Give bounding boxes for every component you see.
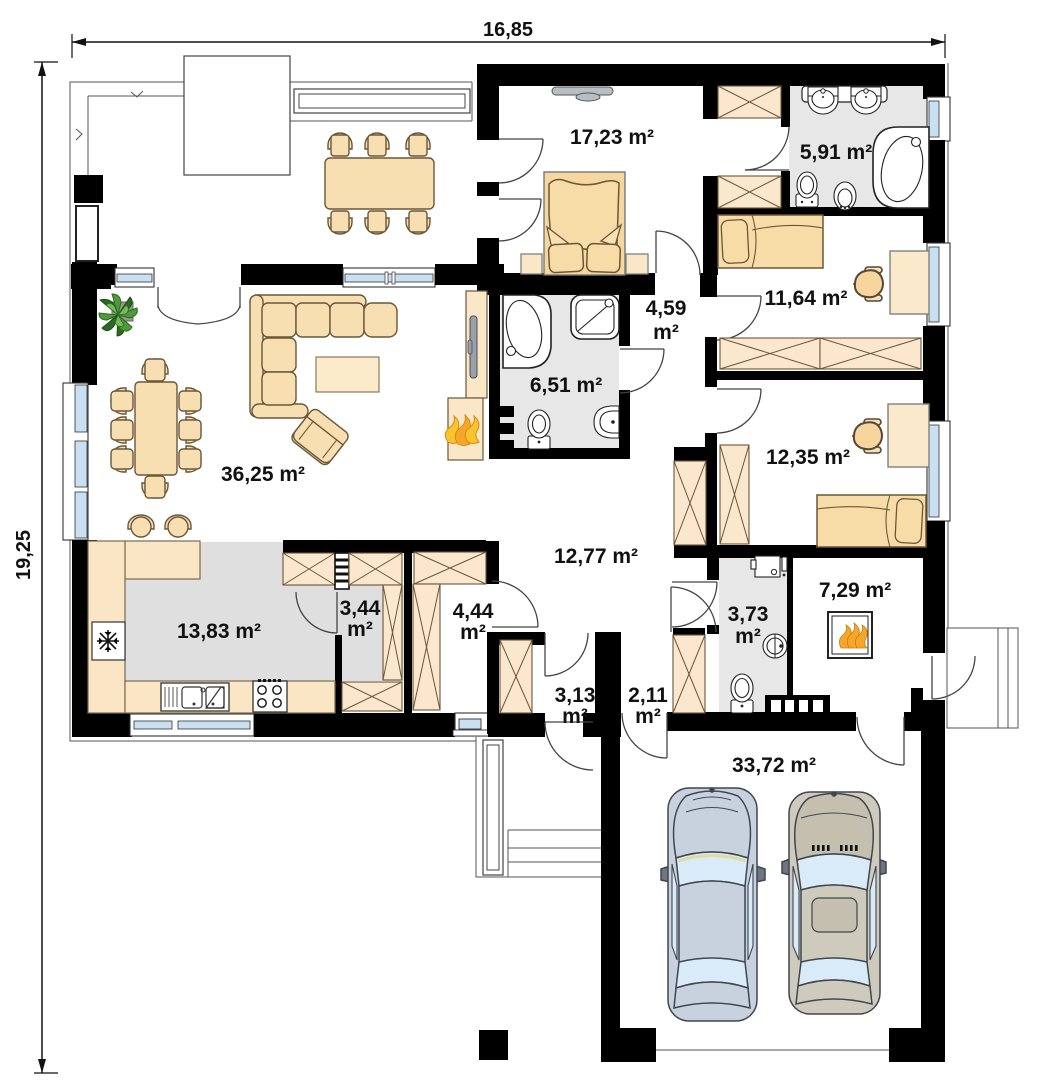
svg-text:11,64 m²: 11,64 m² <box>765 287 848 310</box>
svg-text:3,73: 3,73 <box>728 603 769 626</box>
svg-text:m²: m² <box>653 321 679 344</box>
svg-text:12,35 m²: 12,35 m² <box>766 446 850 469</box>
svg-text:m²: m² <box>735 625 761 648</box>
svg-text:m²: m² <box>635 705 661 728</box>
svg-text:12,77 m²: 12,77 m² <box>554 545 638 568</box>
svg-text:4,59: 4,59 <box>646 297 687 320</box>
svg-text:m²: m² <box>562 705 588 728</box>
svg-text:6,51 m²: 6,51 m² <box>530 374 602 397</box>
svg-text:m²: m² <box>460 621 486 644</box>
svg-text:33,72 m²: 33,72 m² <box>732 754 816 777</box>
svg-text:4,44: 4,44 <box>453 600 494 623</box>
svg-text:7,29 m²: 7,29 m² <box>819 579 891 602</box>
svg-text:36,25 m²: 36,25 m² <box>221 463 305 486</box>
svg-text:19,25: 19,25 <box>13 530 35 580</box>
svg-text:3,13: 3,13 <box>555 684 596 707</box>
svg-text:2,11: 2,11 <box>628 684 668 707</box>
svg-text:16,85: 16,85 <box>483 19 533 41</box>
svg-text:m²: m² <box>347 618 373 641</box>
svg-text:3,44: 3,44 <box>340 597 381 620</box>
svg-text:17,23 m²: 17,23 m² <box>570 126 654 149</box>
svg-text:13,83 m²: 13,83 m² <box>177 620 261 643</box>
svg-text:5,91 m²: 5,91 m² <box>800 141 872 164</box>
